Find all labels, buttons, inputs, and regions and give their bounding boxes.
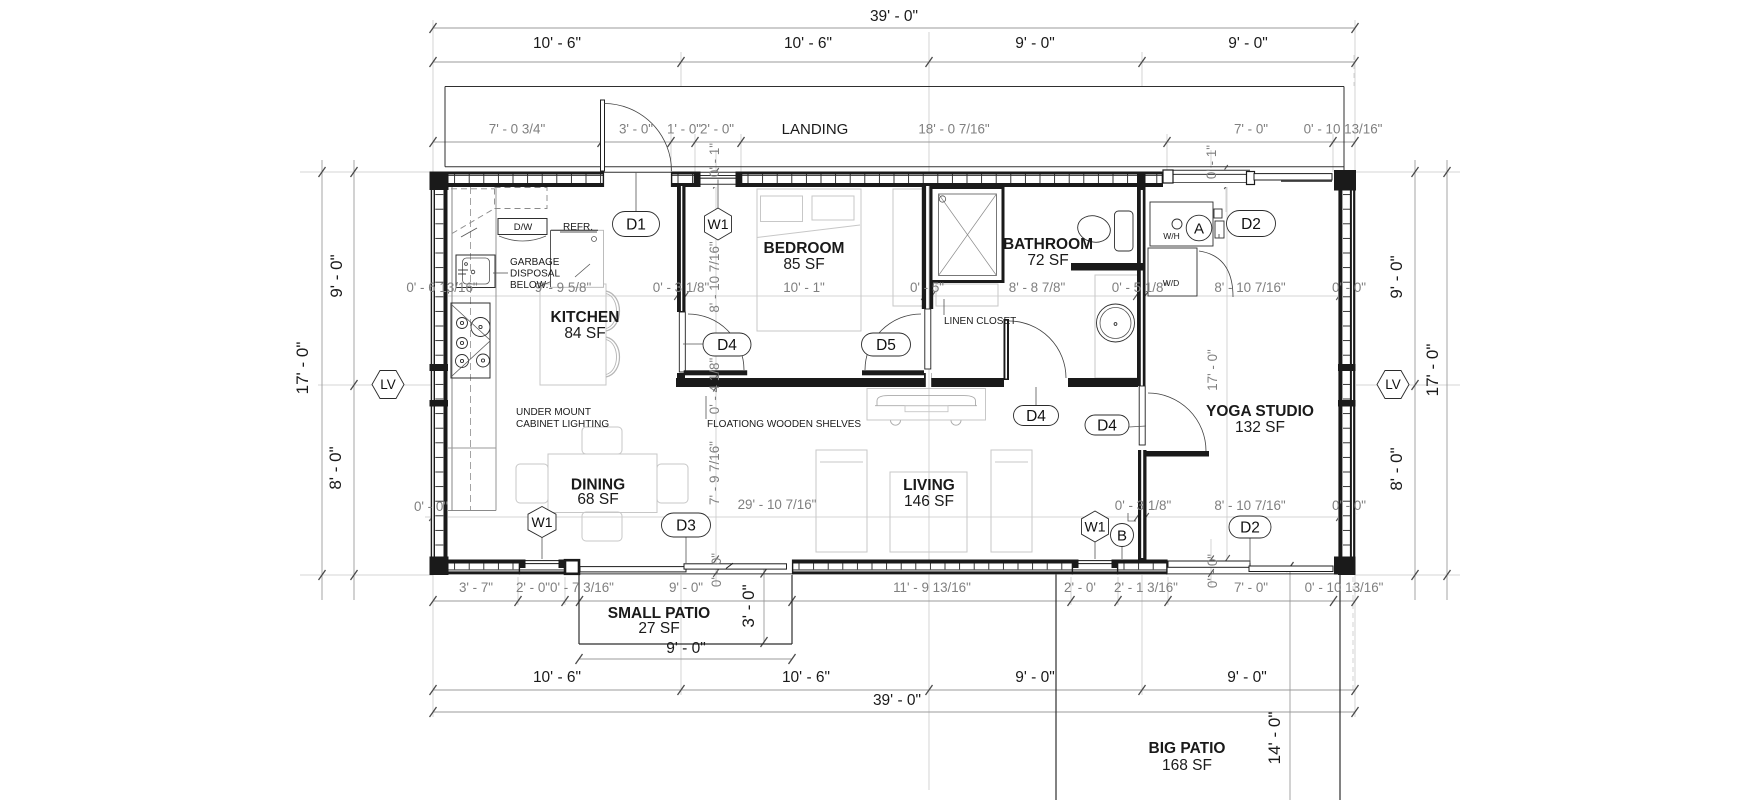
svg-text:0' - 6 13/16": 0' - 6 13/16" [406, 280, 478, 295]
svg-text:REFR.: REFR. [563, 222, 593, 233]
svg-text:0' - 3 1/8": 0' - 3 1/8" [1115, 498, 1172, 513]
svg-text:3' - 0": 3' - 0" [739, 584, 758, 627]
svg-text:0' - 1": 0' - 1" [707, 143, 722, 177]
svg-text:7' - 9 7/16": 7' - 9 7/16" [707, 441, 722, 505]
svg-text:BEDROOM: BEDROOM [764, 240, 845, 257]
svg-text:68 SF: 68 SF [577, 491, 618, 508]
svg-text:39' - 0": 39' - 0" [870, 8, 918, 25]
svg-text:8' - 10 7/16": 8' - 10 7/16" [707, 241, 722, 313]
svg-text:D4: D4 [717, 337, 737, 354]
svg-text:B: B [1117, 527, 1127, 544]
svg-text:UNDER MOUNT: UNDER MOUNT [516, 407, 591, 418]
svg-text:FLOATIONG WOODEN SHELVES: FLOATIONG WOODEN SHELVES [707, 419, 861, 430]
svg-text:11' - 9 13/16": 11' - 9 13/16" [893, 580, 971, 595]
svg-text:84 SF: 84 SF [564, 325, 605, 342]
svg-text:0' - 7 3/16": 0' - 7 3/16" [550, 580, 614, 595]
svg-text:0' - 10 13/16": 0' - 10 13/16" [1305, 580, 1384, 595]
svg-text:0' - 4 1/8": 0' - 4 1/8" [707, 358, 722, 415]
svg-text:0' - 5": 0' - 5" [910, 280, 944, 295]
svg-text:D2: D2 [1240, 519, 1260, 536]
svg-text:2' - 0": 2' - 0" [516, 580, 550, 595]
svg-text:2' - 0": 2' - 0" [700, 122, 734, 137]
svg-text:D5: D5 [876, 337, 896, 354]
svg-text:8' - 0": 8' - 0" [326, 446, 345, 489]
svg-text:9' - 0": 9' - 0" [1015, 669, 1054, 686]
svg-text:14' - 0": 14' - 0" [1265, 712, 1284, 765]
svg-text:9' - 0": 9' - 0" [1015, 35, 1054, 52]
svg-text:17' - 0": 17' - 0" [1205, 349, 1220, 391]
svg-text:2' - 1 3/16": 2' - 1 3/16" [1114, 580, 1178, 595]
svg-text:W1: W1 [532, 514, 553, 530]
svg-text:LV: LV [380, 377, 396, 392]
svg-text:KITCHEN: KITCHEN [551, 309, 620, 326]
svg-text:9' - 0": 9' - 0" [666, 640, 705, 657]
svg-text:BELOW.: BELOW. [510, 280, 548, 291]
svg-text:7' - 0": 7' - 0" [1234, 122, 1268, 137]
svg-text:D4: D4 [1097, 417, 1117, 434]
svg-text:2' - 0': 2' - 0' [1064, 580, 1096, 595]
svg-text:0' - 0": 0' - 0" [709, 553, 724, 587]
svg-text:27 SF: 27 SF [638, 620, 679, 637]
svg-text:3' - 7": 3' - 7" [459, 580, 493, 595]
svg-text:8' - 8 7/8": 8' - 8 7/8" [1009, 280, 1066, 295]
svg-text:8' - 10 7/16": 8' - 10 7/16" [1214, 498, 1286, 513]
svg-text:3' - 0": 3' - 0" [619, 122, 653, 137]
svg-text:9' - 0": 9' - 0" [669, 580, 703, 595]
svg-text:0' - 0": 0' - 0" [414, 499, 448, 514]
svg-text:10' - 6": 10' - 6" [782, 669, 830, 686]
svg-text:0' - 10 13/16": 0' - 10 13/16" [1304, 122, 1383, 137]
svg-text:D1: D1 [626, 216, 646, 233]
svg-text:BIG PATIO: BIG PATIO [1149, 740, 1226, 757]
svg-text:10' - 6": 10' - 6" [784, 35, 832, 52]
svg-text:0' - 3 1/8": 0' - 3 1/8" [653, 280, 710, 295]
svg-text:D2: D2 [1241, 216, 1261, 233]
svg-text:9' - 0": 9' - 0" [327, 254, 346, 297]
svg-text:17' - 0": 17' - 0" [293, 342, 312, 395]
svg-text:D/W: D/W [514, 222, 533, 233]
svg-text:1' - 0": 1' - 0" [667, 122, 701, 137]
svg-text:GARBAGE: GARBAGE [510, 257, 560, 268]
svg-text:W/D: W/D [1163, 278, 1180, 288]
svg-text:8' - 0": 8' - 0" [1387, 447, 1406, 490]
svg-text:BATHROOM: BATHROOM [1003, 236, 1093, 253]
svg-text:CABINET LIGHTING: CABINET LIGHTING [516, 419, 609, 430]
svg-text:10' - 6": 10' - 6" [533, 35, 581, 52]
svg-text:LINEN CLOSET: LINEN CLOSET [944, 316, 1016, 327]
svg-text:7' - 0 3/4": 7' - 0 3/4" [489, 122, 546, 137]
svg-text:146 SF: 146 SF [904, 493, 954, 510]
svg-text:9' - 0": 9' - 0" [1228, 35, 1267, 52]
svg-text:LIVING: LIVING [903, 477, 955, 494]
svg-text:W1: W1 [708, 216, 729, 232]
svg-text:YOGA STUDIO: YOGA STUDIO [1206, 403, 1314, 420]
svg-text:85 SF: 85 SF [783, 256, 824, 273]
svg-text:LANDING: LANDING [782, 121, 849, 138]
svg-text:LV: LV [1385, 377, 1401, 392]
svg-text:10' - 1": 10' - 1" [783, 280, 825, 295]
svg-text:DISPOSAL: DISPOSAL [510, 269, 560, 280]
svg-text:72 SF: 72 SF [1027, 252, 1068, 269]
svg-text:10' - 6": 10' - 6" [533, 669, 581, 686]
svg-text:7' - 0": 7' - 0" [1234, 580, 1268, 595]
svg-text:9' - 0": 9' - 0" [1227, 669, 1266, 686]
svg-text:A: A [1194, 220, 1204, 237]
svg-text:39' - 0": 39' - 0" [873, 692, 921, 709]
svg-text:0' - 0": 0' - 0" [1332, 498, 1366, 513]
svg-text:29' - 10 7/16": 29' - 10 7/16" [738, 497, 817, 512]
svg-text:D3: D3 [676, 517, 696, 534]
svg-text:0' - 0": 0' - 0" [1332, 280, 1366, 295]
svg-text:0' - 0": 0' - 0" [1205, 554, 1220, 588]
svg-text:W1: W1 [1085, 518, 1106, 534]
svg-text:132 SF: 132 SF [1235, 419, 1285, 436]
svg-text:0' - 5 1/8": 0' - 5 1/8" [1112, 280, 1169, 295]
svg-text:8' - 10 7/16": 8' - 10 7/16" [1214, 280, 1286, 295]
svg-text:168 SF: 168 SF [1162, 757, 1212, 774]
svg-text:0' - 1": 0' - 1" [1204, 145, 1219, 179]
svg-text:17' - 0": 17' - 0" [1423, 344, 1442, 397]
svg-text:D4: D4 [1026, 408, 1046, 425]
svg-text:W/H: W/H [1163, 231, 1180, 241]
svg-text:18' - 0 7/16": 18' - 0 7/16" [918, 122, 990, 137]
svg-text:9' - 0": 9' - 0" [1387, 255, 1406, 298]
